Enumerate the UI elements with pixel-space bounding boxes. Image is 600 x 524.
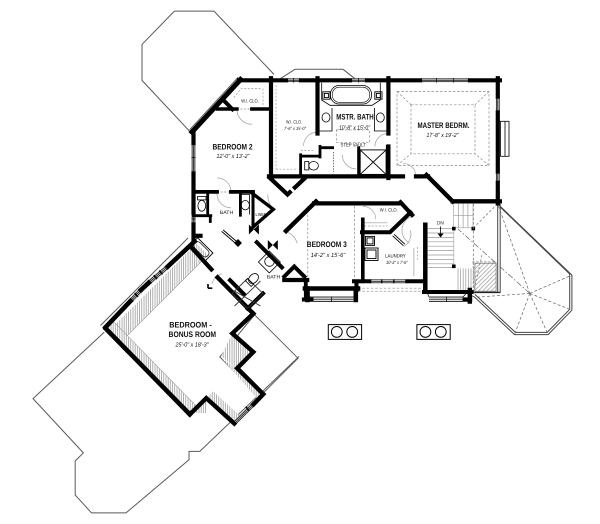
svg-text:LINEN: LINEN <box>256 212 267 217</box>
svg-text:10'-8" x 15'-0": 10'-8" x 15'-0" <box>339 124 371 131</box>
svg-text:LAUNDRY: LAUNDRY <box>385 254 406 260</box>
svg-text:DN: DN <box>437 220 444 226</box>
svg-text:14'-2" x 15'-6": 14'-2" x 15'-6" <box>311 252 346 259</box>
svg-text:BEDROOM -: BEDROOM - <box>169 320 212 329</box>
svg-text:12'-0" x 13'-2": 12'-0" x 13'-2" <box>217 153 251 160</box>
svg-text:MASTER BEDRM.: MASTER BEDRM. <box>418 121 470 130</box>
svg-text:10'-2" x 7'-6": 10'-2" x 7'-6" <box>386 260 408 265</box>
svg-text:BEDROOM 3: BEDROOM 3 <box>307 240 347 249</box>
svg-text:BATH: BATH <box>267 275 281 281</box>
svg-text:MSTR. BATH: MSTR. BATH <box>336 112 374 121</box>
svg-text:W.I. CLO.: W.I. CLO. <box>286 119 302 125</box>
svg-text:7'-6" x 15'-0": 7'-6" x 15'-0" <box>284 126 306 131</box>
svg-text:STEP VAULT: STEP VAULT <box>341 143 366 149</box>
svg-text:W.I. CLO.: W.I. CLO. <box>380 207 398 213</box>
svg-text:W.I. CLO.: W.I. CLO. <box>241 98 259 104</box>
svg-text:BEDROOM 2: BEDROOM 2 <box>213 143 253 152</box>
svg-text:BATH: BATH <box>220 210 234 216</box>
svg-text:BONUS ROOM: BONUS ROOM <box>169 330 217 339</box>
svg-text:17'-8" x 19'-2": 17'-8" x 19'-2" <box>427 132 460 139</box>
svg-text:25'-0" x 18'-3": 25'-0" x 18'-3" <box>175 341 210 348</box>
